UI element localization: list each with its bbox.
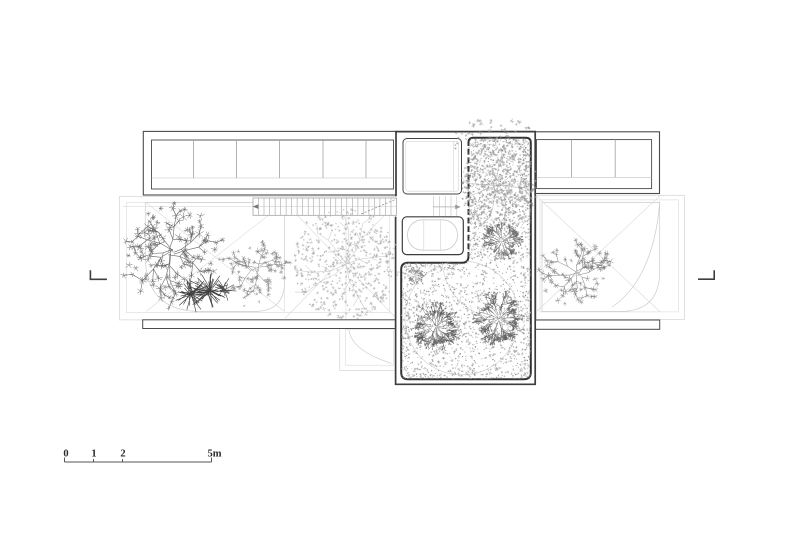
svg-text:5m: 5m (208, 449, 222, 460)
svg-text:0: 0 (63, 449, 68, 460)
svg-text:1: 1 (91, 449, 96, 460)
svg-text:2: 2 (120, 449, 125, 460)
